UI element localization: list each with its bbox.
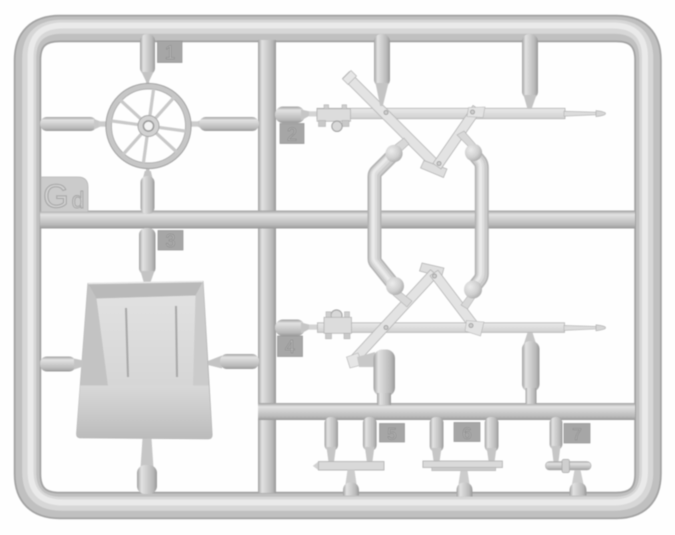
svg-text:G: G bbox=[43, 178, 69, 215]
svg-text:3: 3 bbox=[165, 231, 175, 251]
svg-text:2: 2 bbox=[287, 125, 297, 145]
svg-text:5: 5 bbox=[387, 425, 396, 444]
svg-text:4: 4 bbox=[285, 337, 295, 357]
svg-text:6: 6 bbox=[462, 424, 471, 443]
svg-text:7: 7 bbox=[572, 425, 581, 444]
svg-text:1: 1 bbox=[165, 43, 176, 64]
svg-text:d: d bbox=[72, 187, 85, 213]
